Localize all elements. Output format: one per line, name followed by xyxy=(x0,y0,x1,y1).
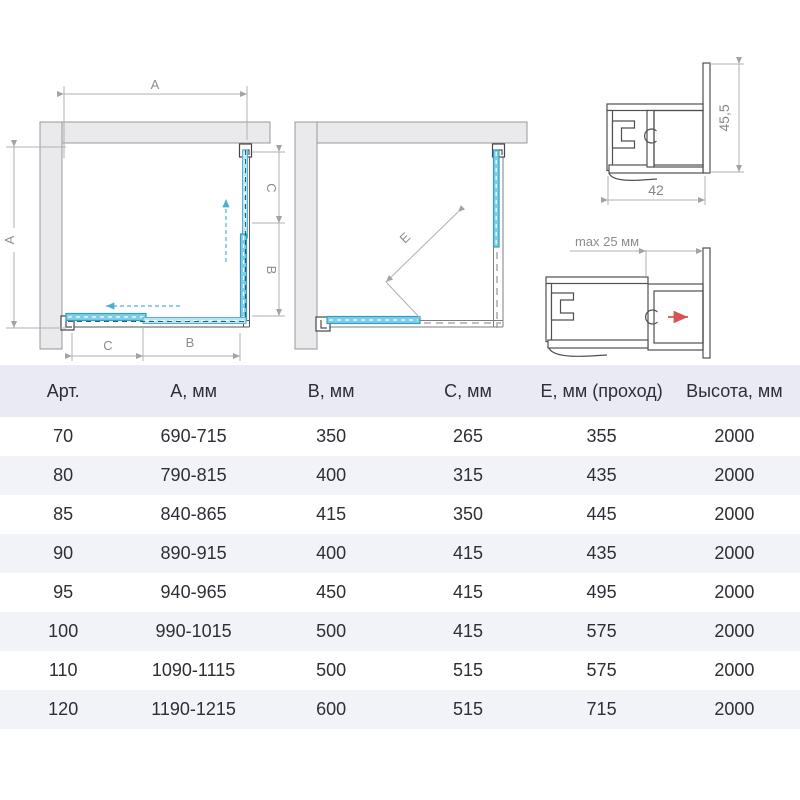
cell: 1190-1215 xyxy=(126,690,260,729)
cell: 265 xyxy=(402,417,535,456)
cell: 495 xyxy=(534,573,668,612)
cell: 1090-1115 xyxy=(126,651,260,690)
wall-top xyxy=(40,122,270,143)
cell: 415 xyxy=(402,612,535,651)
cell: 2000 xyxy=(669,495,800,534)
cell: 400 xyxy=(261,534,402,573)
table-row: 100 990-1015 500 415 575 2000 xyxy=(0,612,800,651)
cell: 355 xyxy=(534,417,668,456)
cell: 415 xyxy=(402,534,535,573)
cell: 515 xyxy=(402,651,535,690)
dim-label-a-left: A xyxy=(2,235,17,244)
header-cell-e: Е, мм (проход) xyxy=(534,365,668,417)
dim-label-c-right: C xyxy=(264,183,279,192)
cell: 100 xyxy=(0,612,126,651)
table-header-row: Арт. А, мм В, мм С, мм Е, мм (проход) Вы… xyxy=(0,365,800,417)
cell: 690-715 xyxy=(126,417,260,456)
cell: 315 xyxy=(402,456,535,495)
table-row: 120 1190-1215 600 515 715 2000 xyxy=(0,690,800,729)
cell: 350 xyxy=(402,495,535,534)
header-cell-c: С, мм xyxy=(402,365,535,417)
profile-adjustment-drawing: max 25 мм xyxy=(546,234,710,358)
cell: 2000 xyxy=(669,456,800,495)
profile-flange xyxy=(703,248,710,358)
header-cell-height: Высота, мм xyxy=(669,365,800,417)
wall-left xyxy=(40,122,62,349)
dim-label-b-right: B xyxy=(264,266,279,275)
cell: 445 xyxy=(534,495,668,534)
cell: 450 xyxy=(261,573,402,612)
cell: 80 xyxy=(0,456,126,495)
cell: 890-915 xyxy=(126,534,260,573)
table-row: 110 1090-1115 500 515 575 2000 xyxy=(0,651,800,690)
table-row: 90 890-915 400 415 435 2000 xyxy=(0,534,800,573)
table-row: 85 840-865 415 350 445 2000 xyxy=(0,495,800,534)
profile-hook-channel xyxy=(552,293,574,320)
profile-hook-channel xyxy=(613,121,635,148)
header-cell-a: А, мм xyxy=(126,365,260,417)
size-table: Арт. А, мм В, мм С, мм Е, мм (проход) Вы… xyxy=(0,365,800,729)
profile-screw-boss xyxy=(646,310,658,324)
cell: 120 xyxy=(0,690,126,729)
wall-left xyxy=(295,122,317,349)
cell: 500 xyxy=(261,612,402,651)
dim-label-e: E xyxy=(397,229,414,246)
cell: 95 xyxy=(0,573,126,612)
cell: 415 xyxy=(402,573,535,612)
cell: 435 xyxy=(534,534,668,573)
cell: 350 xyxy=(261,417,402,456)
cell: 435 xyxy=(534,456,668,495)
table-row: 95 940-965 450 415 495 2000 xyxy=(0,573,800,612)
cell: 415 xyxy=(261,495,402,534)
cell: 840-865 xyxy=(126,495,260,534)
closed-view-diagram: A A C B C B xyxy=(2,77,285,361)
table-row: 70 690-715 350 265 355 2000 xyxy=(0,417,800,456)
cell: 90 xyxy=(0,534,126,573)
table-row: 80 790-815 400 315 435 2000 xyxy=(0,456,800,495)
dim-label-a-top: A xyxy=(151,77,160,92)
cell: 110 xyxy=(0,651,126,690)
cell: 790-815 xyxy=(126,456,260,495)
dim-label-b-bottom: B xyxy=(186,335,195,350)
cell: 940-965 xyxy=(126,573,260,612)
cell: 2000 xyxy=(669,651,800,690)
header-cell-b: В, мм xyxy=(261,365,402,417)
cell: 400 xyxy=(261,456,402,495)
cell: 85 xyxy=(0,495,126,534)
header-cell-art: Арт. xyxy=(0,365,126,417)
dim-label-profile-height: 45,5 xyxy=(716,104,732,131)
cell: 575 xyxy=(534,651,668,690)
cell: 2000 xyxy=(669,417,800,456)
dim-label-profile-width: 42 xyxy=(648,182,664,198)
wall-top xyxy=(295,122,527,143)
cell: 2000 xyxy=(669,612,800,651)
cell: 2000 xyxy=(669,534,800,573)
cell: 990-1015 xyxy=(126,612,260,651)
profile-section-drawing: 45,5 42 xyxy=(607,63,744,205)
cell: 600 xyxy=(261,690,402,729)
cell: 500 xyxy=(261,651,402,690)
dim-label-max-adjust: max 25 мм xyxy=(575,234,639,249)
profile-flange xyxy=(703,63,710,173)
cell: 70 xyxy=(0,417,126,456)
technical-drawings: A A C B C B xyxy=(0,0,800,372)
cell: 575 xyxy=(534,612,668,651)
cell: 2000 xyxy=(669,690,800,729)
cell: 715 xyxy=(534,690,668,729)
dim-label-c-bottom: C xyxy=(103,338,112,353)
open-view-diagram: E xyxy=(295,122,527,349)
cell: 2000 xyxy=(669,573,800,612)
cell: 515 xyxy=(402,690,535,729)
